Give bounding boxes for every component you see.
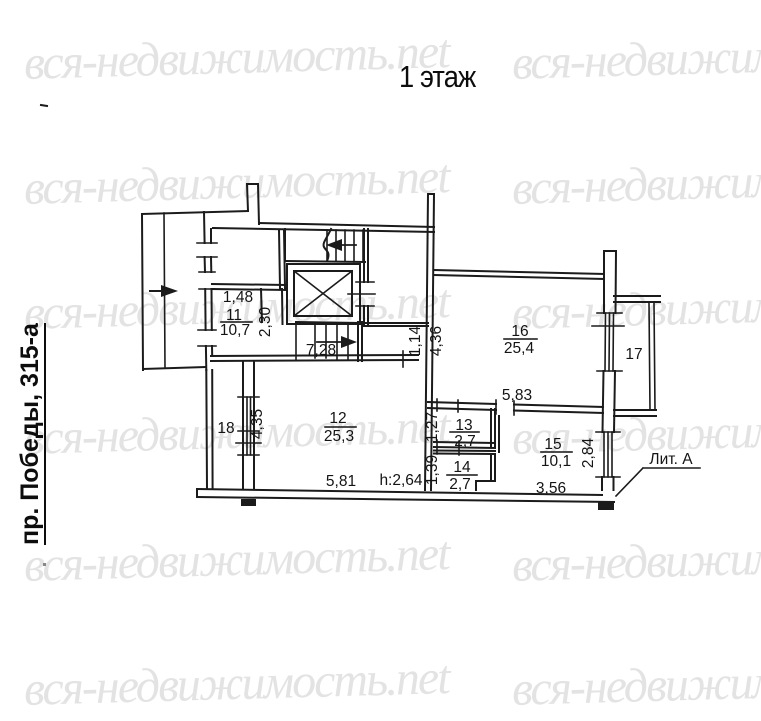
svg-text:10,1: 10,1 <box>541 453 571 470</box>
svg-text:10,7: 10,7 <box>220 322 250 339</box>
svg-text:4,36: 4,36 <box>428 326 445 356</box>
svg-text:18: 18 <box>217 420 234 437</box>
svg-text:25,3: 25,3 <box>324 428 354 445</box>
svg-text:1,27: 1,27 <box>424 412 441 442</box>
svg-text:3,56: 3,56 <box>536 480 566 497</box>
svg-text:1,48: 1,48 <box>223 289 253 306</box>
svg-text:2,84: 2,84 <box>580 438 597 469</box>
svg-text:16: 16 <box>511 323 528 340</box>
svg-text:12: 12 <box>329 410 346 427</box>
svg-text:5,81: 5,81 <box>326 473 356 490</box>
svg-text:2,30: 2,30 <box>257 307 274 338</box>
svg-text:17: 17 <box>625 346 642 363</box>
svg-text:2,7: 2,7 <box>454 433 476 450</box>
svg-text:1,39: 1,39 <box>424 455 441 485</box>
svg-text:1,14: 1,14 <box>407 326 424 357</box>
svg-text:25,4: 25,4 <box>504 340 535 357</box>
svg-text:15: 15 <box>544 436 561 453</box>
svg-text:4,35: 4,35 <box>249 409 266 439</box>
svg-text:h:2,64: h:2,64 <box>379 472 422 489</box>
svg-text:Лит. А: Лит. А <box>649 451 693 468</box>
svg-text:2,7: 2,7 <box>449 476 471 493</box>
svg-text:7,28: 7,28 <box>306 342 336 359</box>
svg-text:14: 14 <box>453 459 471 476</box>
svg-text:5,83: 5,83 <box>502 387 532 404</box>
